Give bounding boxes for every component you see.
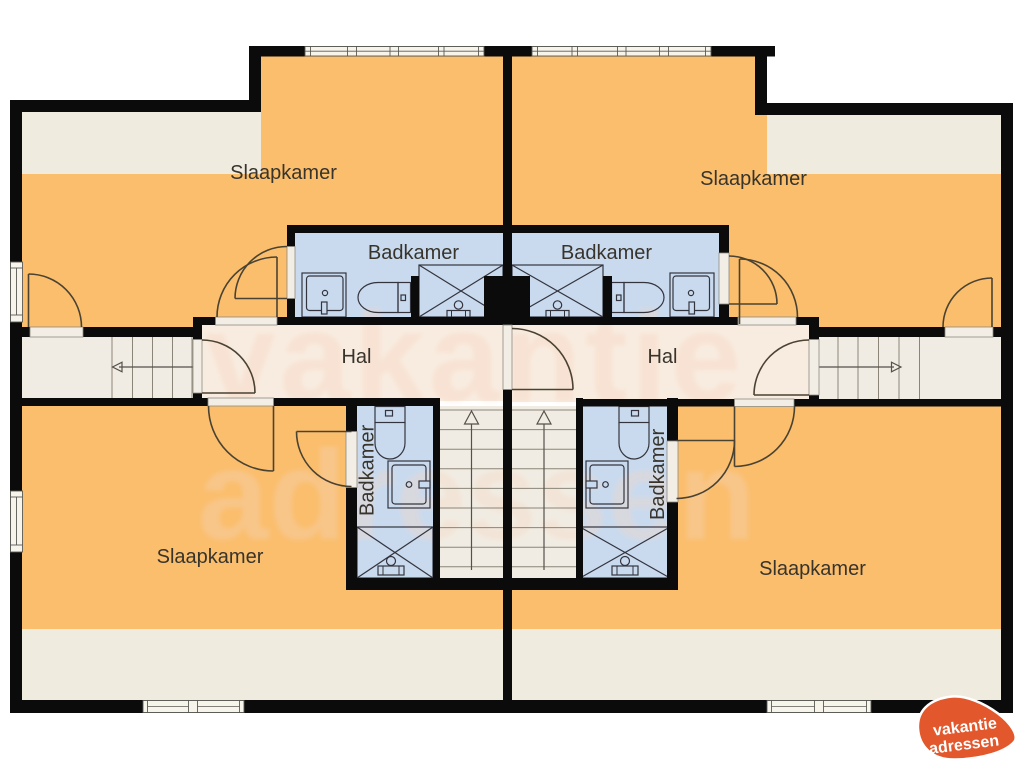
svg-text:Slaapkamer: Slaapkamer — [700, 168, 807, 190]
svg-text:Slaapkamer: Slaapkamer — [230, 162, 337, 184]
svg-text:Slaapkamer: Slaapkamer — [157, 546, 264, 568]
svg-text:Badkamer: Badkamer — [561, 242, 652, 264]
svg-text:Badkamer: Badkamer — [368, 242, 459, 264]
svg-text:Hal: Hal — [647, 346, 677, 368]
svg-text:Badkamer: Badkamer — [647, 429, 669, 520]
svg-text:Hal: Hal — [341, 346, 371, 368]
svg-text:Slaapkamer: Slaapkamer — [759, 558, 866, 580]
svg-text:Badkamer: Badkamer — [357, 425, 379, 516]
